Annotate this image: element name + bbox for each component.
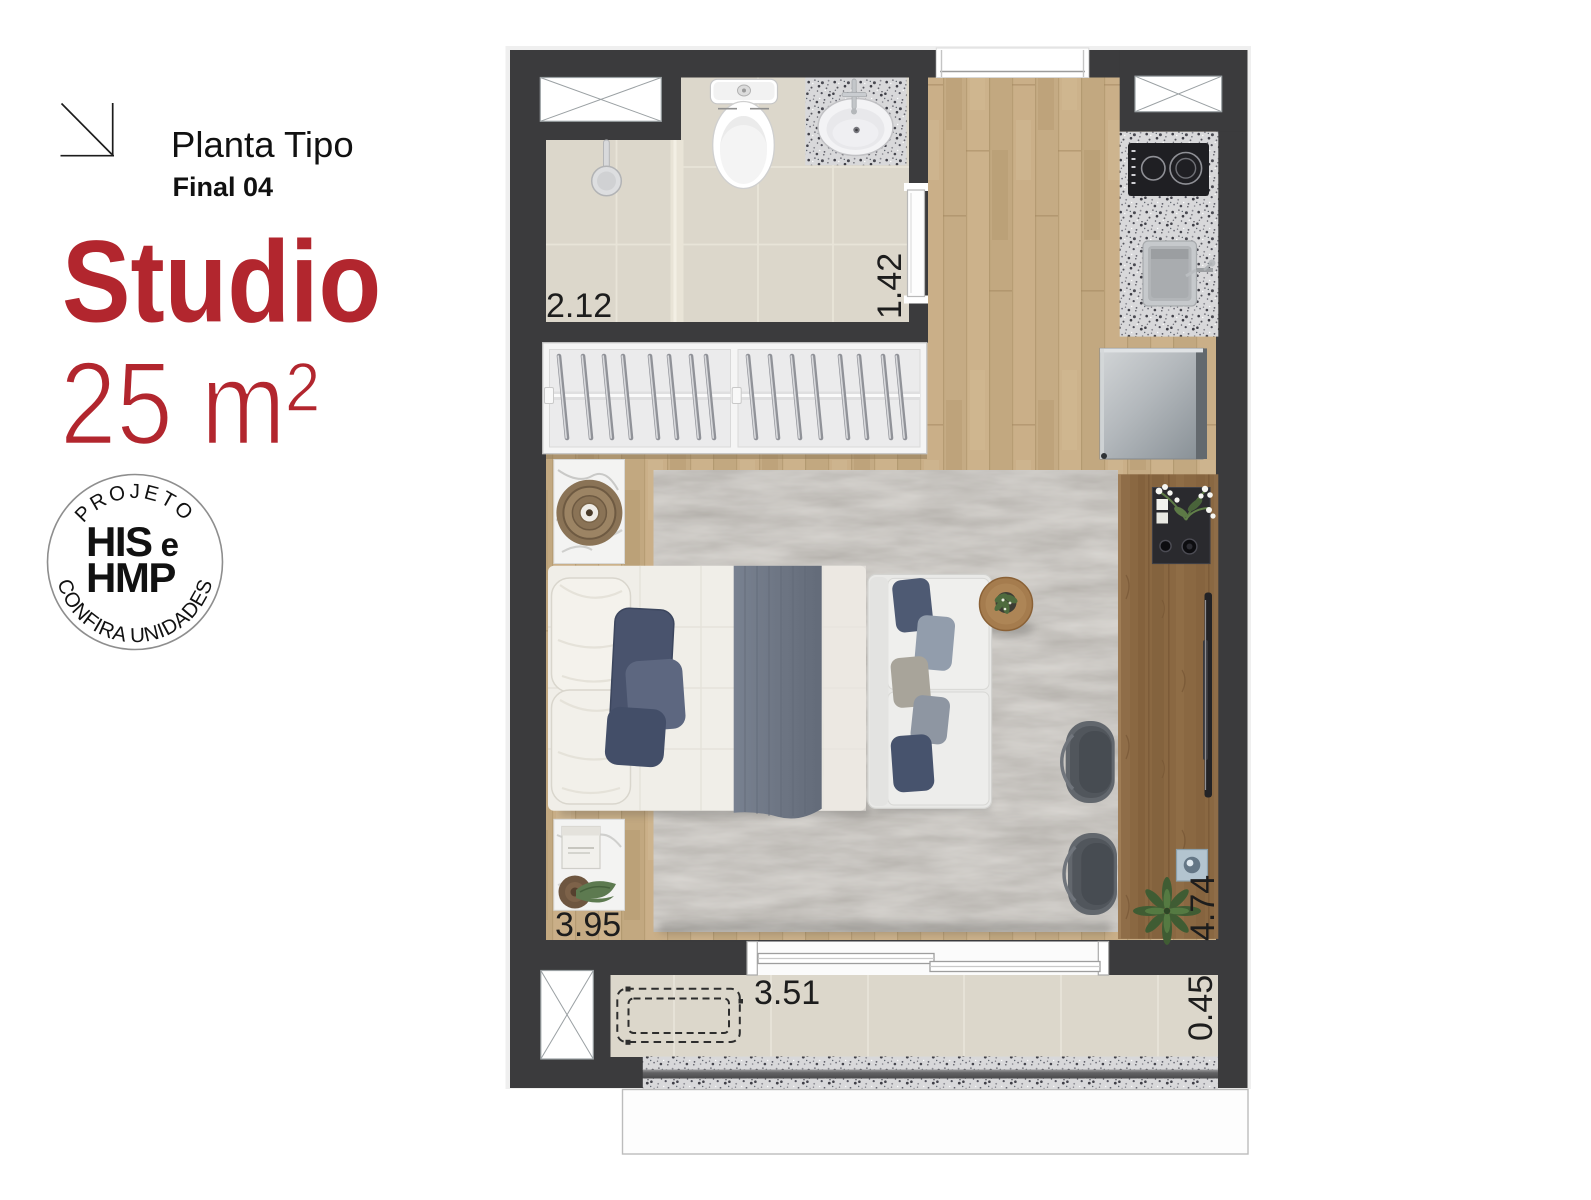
svg-text:Final 04: Final 04	[173, 172, 274, 202]
svg-text:Planta Tipo: Planta Tipo	[171, 124, 354, 165]
svg-text:1.42: 1.42	[871, 253, 909, 319]
svg-text:0.45: 0.45	[1182, 975, 1220, 1041]
svg-text:HMP: HMP	[86, 554, 175, 601]
svg-text:3.51: 3.51	[754, 974, 820, 1012]
svg-text:2.12: 2.12	[546, 287, 612, 325]
svg-text:Studio: Studio	[62, 218, 381, 347]
svg-text:3.95: 3.95	[555, 906, 621, 944]
svg-text:4.74: 4.74	[1184, 875, 1222, 941]
svg-text:25 m²: 25 m²	[60, 338, 319, 470]
